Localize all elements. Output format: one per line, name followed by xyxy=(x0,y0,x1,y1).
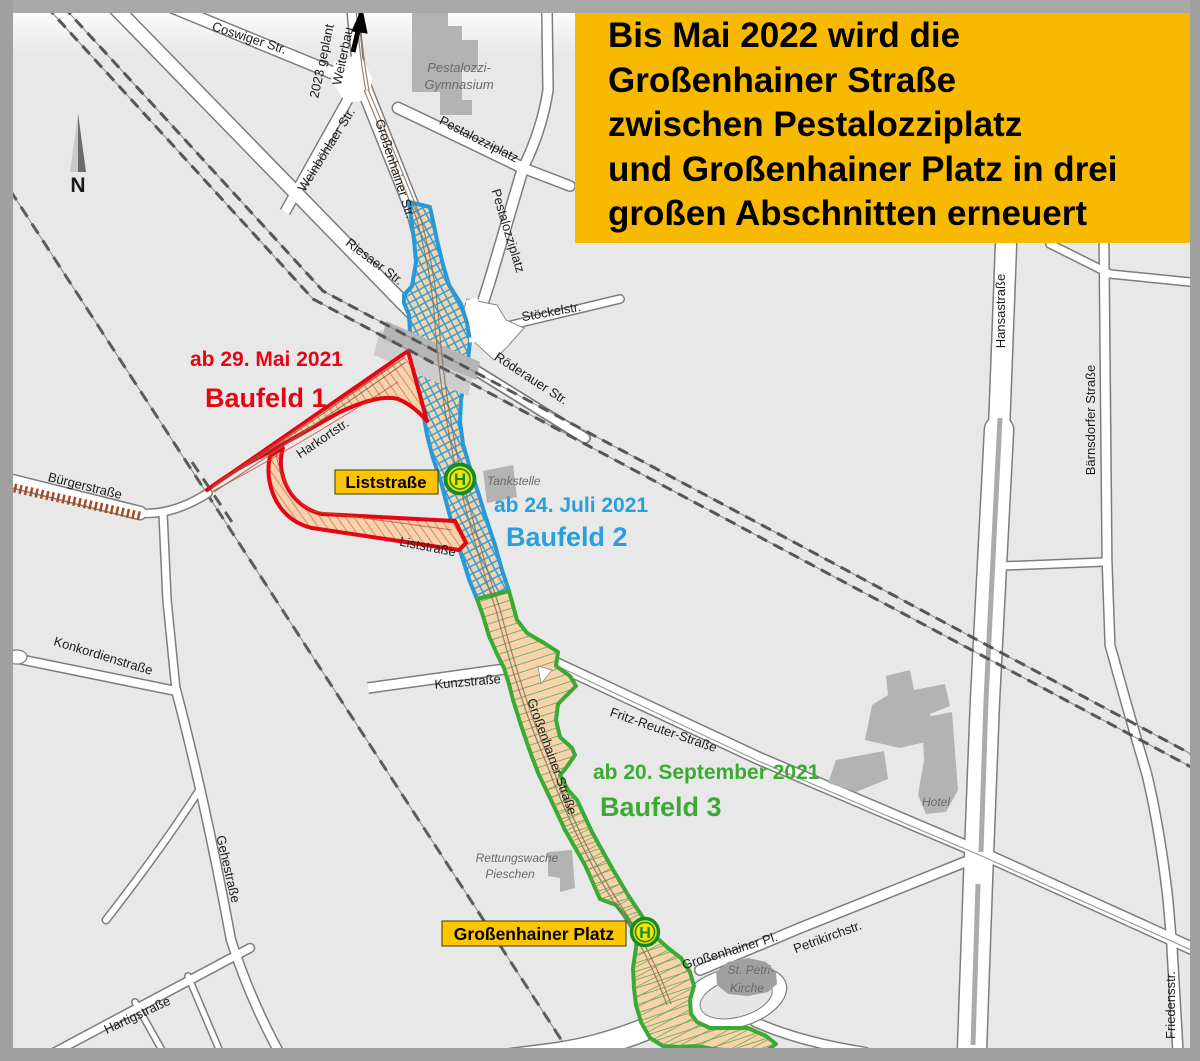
svg-text:Pestalozzi-: Pestalozzi- xyxy=(427,60,491,75)
svg-text:Gymnasium: Gymnasium xyxy=(424,77,494,92)
svg-text:H: H xyxy=(454,470,466,489)
svg-text:H: H xyxy=(639,925,651,942)
svg-text:Kirche: Kirche xyxy=(730,981,764,995)
svg-text:Liststraße: Liststraße xyxy=(345,473,426,492)
svg-text:Großenhainer Straße: Großenhainer Straße xyxy=(608,61,956,100)
svg-text:und Großenhainer Platz in drei: und Großenhainer Platz in drei xyxy=(608,150,1118,189)
svg-text:ab 20. September 2021: ab 20. September 2021 xyxy=(593,761,820,784)
svg-text:Hansastraße: Hansastraße xyxy=(993,274,1008,348)
svg-text:Baufeld 2: Baufeld 2 xyxy=(506,522,628,552)
svg-text:Baufeld 1: Baufeld 1 xyxy=(205,383,327,413)
svg-text:Tankstelle: Tankstelle xyxy=(487,474,541,488)
svg-text:Bärnsdorfer Straße: Bärnsdorfer Straße xyxy=(1083,365,1098,476)
svg-text:großen Abschnitten erneuert: großen Abschnitten erneuert xyxy=(608,194,1087,233)
svg-text:Großenhainer Platz: Großenhainer Platz xyxy=(454,924,615,944)
svg-text:Rettungswache: Rettungswache xyxy=(476,851,559,865)
svg-text:Friedensstr.: Friedensstr. xyxy=(1163,971,1178,1039)
svg-text:N: N xyxy=(70,174,85,197)
svg-text:Pieschen: Pieschen xyxy=(485,867,535,881)
svg-text:Baufeld 3: Baufeld 3 xyxy=(600,792,722,822)
svg-text:St. Petri-: St. Petri- xyxy=(728,963,775,977)
svg-text:Hotel: Hotel xyxy=(922,795,950,809)
svg-text:zwischen Pestalozziplatz: zwischen Pestalozziplatz xyxy=(608,105,1022,144)
svg-text:ab 24. Juli 2021: ab 24. Juli 2021 xyxy=(494,494,648,517)
svg-text:Bis Mai 2022 wird die: Bis Mai 2022 wird die xyxy=(608,16,960,55)
svg-text:ab 29. Mai 2021: ab 29. Mai 2021 xyxy=(190,348,343,371)
